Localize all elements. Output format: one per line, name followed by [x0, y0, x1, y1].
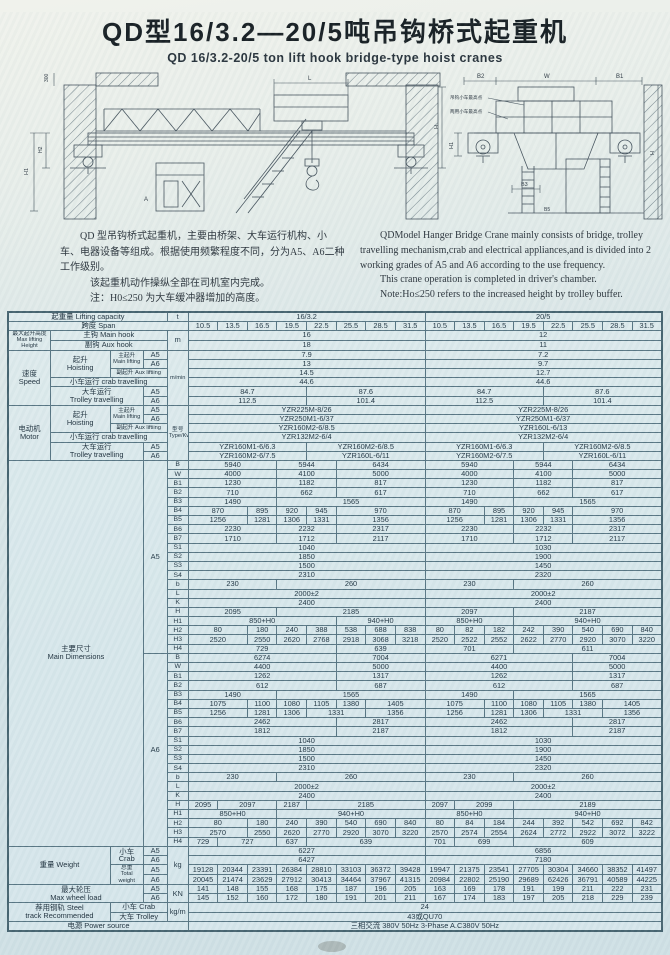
- value-cell: 240: [277, 819, 307, 828]
- row-label-cell: 跨度 Span: [8, 321, 188, 330]
- dim-key-cell: S1: [167, 543, 188, 552]
- value-cell: 1256: [425, 708, 484, 717]
- value-cell: 6434: [336, 460, 425, 469]
- dim-key-cell: S3: [167, 561, 188, 570]
- value-cell: 2570: [425, 828, 455, 837]
- table-row: 荐用钢轨 Steel track Recommended小车 Crabkg/m2…: [8, 903, 662, 912]
- value-cell: 692: [603, 819, 633, 828]
- row-label-cell: 重量 Weight: [8, 846, 110, 884]
- value-cell: 240: [277, 626, 307, 635]
- value-cell: 3070: [603, 635, 633, 644]
- value-cell: 4400: [425, 663, 573, 672]
- value-cell: 1040: [188, 736, 425, 745]
- value-cell: 2400: [425, 598, 662, 607]
- value-cell: 260: [514, 580, 662, 589]
- value-cell: 101.4: [307, 396, 425, 405]
- value-cell: 7.9: [188, 350, 425, 359]
- value-cell: 850+H0: [425, 617, 514, 626]
- row-label-cell: 副钩 Aux hook: [50, 340, 167, 350]
- bridge-girder: [88, 131, 414, 145]
- value-cell: KN: [167, 884, 188, 902]
- value-cell: 850+H0: [188, 810, 277, 819]
- table-row: 电源 Power source三相交流 380V 50Hz 3-Phase A.…: [8, 921, 662, 931]
- value-cell: 1230: [188, 479, 277, 488]
- value-cell: 183: [484, 894, 514, 903]
- specification-table: 起重量 Lifting capacityt16/3.220/5跨度 Span10…: [7, 311, 663, 932]
- value-cell: 2570: [188, 828, 247, 837]
- value-cell: 1182: [277, 479, 336, 488]
- table-row: 起重量 Lifting capacityt16/3.220/5: [8, 312, 662, 322]
- value-cell: 9.7: [425, 359, 662, 368]
- value-cell: A6: [143, 396, 167, 405]
- value-cell: 1500: [188, 561, 425, 570]
- value-cell: 1900: [425, 552, 662, 561]
- value-cell: 191: [336, 894, 366, 903]
- value-cell: 22802: [455, 875, 485, 885]
- value-cell: 20045: [188, 875, 218, 885]
- value-cell: 5940: [425, 460, 514, 469]
- value-cell: 141: [188, 884, 218, 893]
- value-cell: 2185: [307, 800, 425, 809]
- table-row: 小车运行 crab travelling44.644.6: [8, 378, 662, 387]
- intro-zh-paragraph: QD 型吊钩桥式起重机，主要由桥架、大车运行机构、小车、电器设备等组成。根据使用…: [60, 229, 346, 276]
- value-cell: 940+H0: [514, 810, 662, 819]
- technical-drawings: 300 L H1 H2 H A: [4, 71, 666, 223]
- value-cell: 2772: [543, 828, 573, 837]
- value-cell: 1331: [543, 708, 602, 717]
- value-cell: 817: [336, 479, 425, 488]
- dim-key-cell: K: [167, 791, 188, 800]
- dim-label-L: L: [308, 76, 312, 82]
- dim-key-cell: B4: [167, 699, 188, 708]
- value-cell: A6: [143, 414, 167, 423]
- value-cell: 1850: [188, 745, 425, 754]
- value-cell: 2550: [247, 828, 277, 837]
- row-label-cell: 大车运行 Trolley travelling: [50, 442, 143, 460]
- value-cell: A5: [143, 405, 167, 414]
- value-cell: 2097: [218, 800, 277, 809]
- table-row: 跨度 Span10.513.516.519.522.525.528.531.51…: [8, 321, 662, 330]
- value-cell: 5000: [336, 663, 425, 672]
- row-label-cell: 主要尺寸 Main Dimensions: [8, 460, 143, 846]
- detail-label-A: A: [144, 197, 148, 203]
- value-cell: 2189: [514, 800, 662, 809]
- dim-key-cell: B4: [167, 506, 188, 515]
- value-cell: 2187: [336, 727, 425, 736]
- value-cell: 4400: [188, 663, 336, 672]
- value-cell: 34660: [573, 865, 603, 875]
- row-label-cell: 主起升 Main lifting: [110, 405, 143, 423]
- value-cell: 1565: [514, 690, 662, 699]
- value-cell: 13.5: [218, 321, 248, 330]
- value-cell: 260: [277, 773, 425, 782]
- value-cell: 3222: [632, 828, 662, 837]
- dim-key-cell: H2: [167, 819, 188, 828]
- dim-key-cell: H: [167, 607, 188, 616]
- dim-key-cell: H3: [167, 828, 188, 837]
- crane-end-view-drawing: B2 W B1 H1 B3 B5 H 吊钩小车最高点 两用小车最高点: [448, 71, 664, 223]
- value-cell: A5: [143, 460, 167, 653]
- value-cell: 1256: [188, 516, 247, 525]
- value-cell: 242: [514, 626, 544, 635]
- row-label-cell: 最大起升高度 Max lifting Height: [8, 330, 50, 350]
- value-cell: 612: [188, 681, 336, 690]
- dim-key-cell: B7: [167, 534, 188, 543]
- value-cell: 41315: [395, 875, 425, 885]
- dim-key-cell: S3: [167, 754, 188, 763]
- value-cell: 710: [188, 488, 277, 497]
- value-cell: 3220: [632, 635, 662, 644]
- value-cell: 28.5: [603, 321, 633, 330]
- value-cell: 230: [425, 580, 514, 589]
- value-cell: 1710: [425, 534, 514, 543]
- value-cell: 43或QU70: [188, 912, 662, 921]
- value-cell: 23629: [247, 875, 277, 885]
- value-cell: 1182: [514, 479, 573, 488]
- value-cell: 182: [484, 626, 514, 635]
- value-cell: 62426: [543, 875, 573, 885]
- dim-key-cell: b: [167, 773, 188, 782]
- row-label-cell: 副起升 Aux liftiing: [110, 369, 167, 378]
- value-cell: YZR160M2-6/8.5: [543, 442, 661, 451]
- row-label-cell: 起升 Hoisting: [50, 405, 110, 433]
- value-cell: 842: [632, 819, 662, 828]
- value-cell: 25190: [484, 875, 514, 885]
- value-cell: 112.5: [425, 396, 543, 405]
- value-cell: 639: [336, 644, 425, 653]
- value-cell: 1080: [277, 699, 307, 708]
- value-cell: 44.6: [425, 378, 662, 387]
- value-cell: 19.5: [277, 321, 307, 330]
- right-wall-hatch: [346, 73, 440, 219]
- dim-key-cell: H2: [167, 626, 188, 635]
- value-cell: 222: [603, 884, 633, 893]
- value-cell: 6427: [188, 855, 425, 864]
- table-row: 大车运行 Trolley travellingA584.787.684.787.…: [8, 387, 662, 396]
- value-cell: YZR160M2-6/7.5: [425, 451, 543, 460]
- value-cell: 168: [277, 884, 307, 893]
- value-cell: 87.6: [307, 387, 425, 396]
- bridge-cross-section: [474, 87, 638, 133]
- value-cell: A6: [143, 894, 167, 903]
- row-label-cell: 小车 Crab: [110, 846, 143, 864]
- value-cell: 2317: [336, 525, 425, 534]
- value-cell: 7004: [336, 653, 425, 662]
- value-cell: 1306: [277, 516, 307, 525]
- table-row: 速度 Speed起升 Hoisting主起升 Main liftingA5m/m…: [8, 350, 662, 359]
- value-cell: 37967: [366, 875, 396, 885]
- value-cell: A6: [143, 451, 167, 460]
- value-cell: 145: [188, 894, 218, 903]
- value-cell: 2230: [188, 525, 277, 534]
- value-cell: 2000±2: [188, 589, 425, 598]
- row-label-cell: 副起升 Aux liftiing: [110, 424, 167, 433]
- value-cell: 1490: [425, 690, 514, 699]
- value-cell: 1490: [188, 690, 277, 699]
- value-cell: 19947: [425, 865, 455, 875]
- value-cell: 945: [307, 506, 337, 515]
- value-cell: 2400: [425, 791, 662, 800]
- table-row: 最大起升高度 Max lifting Height主钩 Main hookm16…: [8, 330, 662, 340]
- row-label-cell: 起升 Hoisting: [50, 350, 110, 378]
- intro-zh-note: 注：H0≤250 为大车缓冲器增加的高度。: [60, 291, 346, 307]
- value-cell: 2522: [455, 635, 485, 644]
- value-cell: A6: [143, 875, 167, 885]
- value-cell: 22.5: [307, 321, 337, 330]
- dim-key-cell: W: [167, 663, 188, 672]
- value-cell: 970: [336, 506, 425, 515]
- value-cell: 3070: [366, 828, 396, 837]
- value-cell: 2400: [188, 598, 425, 607]
- value-cell: 31.5: [632, 321, 662, 330]
- value-cell: 612: [425, 681, 573, 690]
- value-cell: 30304: [543, 865, 573, 875]
- value-cell: 1380: [573, 699, 603, 708]
- value-cell: 2622: [514, 635, 544, 644]
- value-cell: 163: [425, 884, 455, 893]
- value-cell: 1490: [188, 497, 277, 506]
- page-subtitle: QD 16/3.2-20/5 ton lift hook bridge-type…: [0, 51, 670, 65]
- value-cell: 1490: [425, 497, 514, 506]
- dim-label-H1: H1: [24, 168, 30, 175]
- value-cell: A5: [143, 884, 167, 893]
- end-truck-right: [610, 133, 640, 163]
- value-cell: YZR250M1-6/37: [425, 414, 662, 423]
- row-label-cell: 电动机 Motor: [8, 405, 50, 460]
- value-cell: YZR132M2-6/4: [188, 433, 425, 442]
- value-cell: 2620: [277, 828, 307, 837]
- value-cell: A6: [143, 359, 167, 368]
- crab-trolley: [274, 95, 348, 190]
- dim-key-cell: W: [167, 470, 188, 479]
- value-cell: 701: [425, 837, 455, 846]
- value-cell: 5944: [277, 460, 336, 469]
- value-cell: 1256: [188, 708, 247, 717]
- value-cell: 80: [188, 626, 247, 635]
- value-cell: A5: [143, 387, 167, 396]
- value-cell: 617: [336, 488, 425, 497]
- end-truck-left: [468, 133, 498, 163]
- dim-label-B3: B3: [521, 182, 528, 188]
- value-cell: 230: [188, 580, 277, 589]
- value-cell: 169: [455, 884, 485, 893]
- value-cell: 180: [247, 626, 277, 635]
- dim-key-cell: B2: [167, 488, 188, 497]
- value-cell: 40589: [603, 875, 633, 885]
- value-cell: 3220: [395, 828, 425, 837]
- value-cell: 84.7: [425, 387, 543, 396]
- value-cell: 2922: [573, 828, 603, 837]
- value-cell: 1317: [573, 672, 662, 681]
- value-cell: 1405: [366, 699, 425, 708]
- value-cell: 101.4: [543, 396, 661, 405]
- value-cell: 6227: [188, 846, 425, 855]
- value-cell: 690: [603, 626, 633, 635]
- value-cell: 895: [247, 506, 277, 515]
- intro-english: QDModel Hanger Bridge Crane mainly consi…: [360, 229, 656, 307]
- value-cell: 687: [336, 681, 425, 690]
- value-cell: 1450: [425, 561, 662, 570]
- value-cell: 36372: [366, 865, 396, 875]
- value-cell: 201: [366, 894, 396, 903]
- value-cell: 19.5: [514, 321, 544, 330]
- value-cell: 11: [425, 340, 662, 350]
- dim-key-cell: B1: [167, 479, 188, 488]
- value-cell: 7004: [573, 653, 662, 662]
- dim-key-cell: B2: [167, 681, 188, 690]
- value-cell: 174: [455, 894, 485, 903]
- value-cell: 21474: [218, 875, 248, 885]
- value-cell: 155: [247, 884, 277, 893]
- value-cell: 2000±2: [425, 782, 662, 791]
- value-cell: 三相交流 380V 50Hz 3-Phase A.C380V 50Hz: [188, 921, 662, 931]
- dim-key-cell: S4: [167, 764, 188, 773]
- value-cell: 7.2: [425, 350, 662, 359]
- value-cell: m/min: [167, 350, 188, 405]
- value-cell: 21375: [455, 865, 485, 875]
- value-cell: 609: [514, 837, 662, 846]
- value-cell: 1450: [425, 754, 662, 763]
- value-cell: 639: [307, 837, 425, 846]
- value-cell: 44225: [632, 875, 662, 885]
- value-cell: YZR160M1-6/6.3: [188, 442, 306, 451]
- dim-key-cell: H4: [167, 644, 188, 653]
- value-cell: 727: [218, 837, 277, 846]
- value-cell: 5000: [573, 470, 662, 479]
- value-cell: 1262: [188, 672, 336, 681]
- value-cell: YZR160L-6/11: [543, 451, 661, 460]
- value-cell: 5940: [188, 460, 277, 469]
- value-cell: 2462: [188, 718, 336, 727]
- value-cell: 7180: [425, 855, 662, 864]
- value-cell: 4100: [277, 470, 336, 479]
- value-cell: 30413: [307, 875, 337, 885]
- dim-key-cell: S2: [167, 552, 188, 561]
- value-cell: 1712: [514, 534, 573, 543]
- value-cell: 2920: [336, 828, 366, 837]
- value-cell: 20984: [425, 875, 455, 885]
- intro-en-paragraph: QDModel Hanger Bridge Crane mainly consi…: [360, 229, 656, 273]
- value-cell: 1356: [336, 516, 425, 525]
- value-cell: 1080: [514, 699, 544, 708]
- value-cell: 1100: [484, 699, 514, 708]
- table-row: 小车运行 crab travellingYZR132M2-6/4YZR132M2…: [8, 433, 662, 442]
- dim-key-cell: L: [167, 782, 188, 791]
- value-cell: 2552: [484, 635, 514, 644]
- value-cell: 6271: [425, 653, 573, 662]
- dim-key-cell: B1: [167, 672, 188, 681]
- dim-key-cell: H: [167, 800, 188, 809]
- value-cell: 230: [188, 773, 277, 782]
- value-cell: A5: [143, 865, 167, 875]
- hook-icon: [306, 176, 319, 190]
- value-cell: 27705: [514, 865, 544, 875]
- value-cell: A5: [143, 846, 167, 855]
- dim-key-cell: B: [167, 653, 188, 662]
- value-cell: 870: [425, 506, 484, 515]
- value-cell: 4100: [514, 470, 573, 479]
- value-cell: 1565: [277, 497, 425, 506]
- value-cell: A6: [143, 653, 167, 846]
- value-cell: 1710: [188, 534, 277, 543]
- value-cell: 840: [395, 819, 425, 828]
- value-cell: 184: [484, 819, 514, 828]
- trolley-frame: [508, 133, 644, 213]
- value-cell: 13.5: [455, 321, 485, 330]
- value-cell: 2187: [573, 727, 662, 736]
- table-row: 大车运行 Trolley travellingA5YZR160M1-6/6.3Y…: [8, 442, 662, 451]
- value-cell: 167: [425, 894, 455, 903]
- value-cell: 178: [484, 884, 514, 893]
- value-cell: 10.5: [188, 321, 218, 330]
- value-cell: 20344: [218, 865, 248, 875]
- value-cell: 1306: [277, 708, 307, 717]
- row-label-cell: 最大轮压 Max wheel load: [8, 884, 143, 902]
- value-cell: 4000: [425, 470, 514, 479]
- value-cell: 3068: [366, 635, 396, 644]
- value-cell: 199: [543, 884, 573, 893]
- dim-key-cell: B: [167, 460, 188, 469]
- value-cell: 2310: [188, 571, 425, 580]
- value-cell: 1317: [336, 672, 425, 681]
- value-cell: 5000: [573, 663, 662, 672]
- value-cell: 230: [425, 773, 514, 782]
- value-cell: 80: [425, 626, 455, 635]
- value-cell: YZR160L-6/13: [425, 424, 662, 433]
- value-cell: 28.5: [366, 321, 396, 330]
- value-cell: 2187: [277, 800, 307, 809]
- value-cell: 940+H0: [277, 810, 425, 819]
- value-cell: 1565: [277, 690, 425, 699]
- value-cell: 687: [573, 681, 662, 690]
- value-cell: 1105: [543, 699, 573, 708]
- value-cell: 24: [188, 903, 662, 912]
- value-cell: A6: [143, 855, 167, 864]
- intro-paragraphs: QD 型吊钩桥式起重机，主要由桥架、大车运行机构、小车、电器设备等组成。根据使用…: [60, 229, 656, 307]
- value-cell: 16: [188, 330, 425, 340]
- value-cell: 231: [632, 884, 662, 893]
- value-cell: 850+H0: [425, 810, 514, 819]
- value-cell: 196: [366, 884, 396, 893]
- value-cell: 1040: [188, 543, 425, 552]
- value-cell: kg: [167, 846, 188, 884]
- dim-key-cell: S1: [167, 736, 188, 745]
- value-cell: 817: [573, 479, 662, 488]
- value-cell: 229: [603, 894, 633, 903]
- table-row: 主要尺寸 Main DimensionsA5B59405944643459405…: [8, 460, 662, 469]
- value-cell: YZR160M1-6/6.3: [425, 442, 543, 451]
- value-cell: A5: [143, 350, 167, 359]
- value-cell: 1331: [543, 516, 573, 525]
- value-cell: 33103: [336, 865, 366, 875]
- value-cell: 699: [455, 837, 514, 846]
- dim-key-cell: H4: [167, 837, 188, 846]
- value-cell: YZR225M-8/26: [188, 405, 425, 414]
- value-cell: 80: [425, 819, 455, 828]
- value-cell: YZR160M2-6/8.5: [188, 424, 425, 433]
- value-cell: 540: [573, 626, 603, 635]
- dim-key-cell: B6: [167, 525, 188, 534]
- value-cell: 2320: [425, 764, 662, 773]
- hook-pulley-icon: [307, 166, 317, 176]
- value-cell: 540: [336, 819, 366, 828]
- value-cell: 2768: [307, 635, 337, 644]
- dim-label-300: 300: [44, 73, 50, 82]
- value-cell: 6434: [573, 460, 662, 469]
- annotation-trolley-highest-point-2: 两用小车最高点: [450, 108, 483, 115]
- value-cell: t: [167, 312, 188, 322]
- value-cell: 23391: [247, 865, 277, 875]
